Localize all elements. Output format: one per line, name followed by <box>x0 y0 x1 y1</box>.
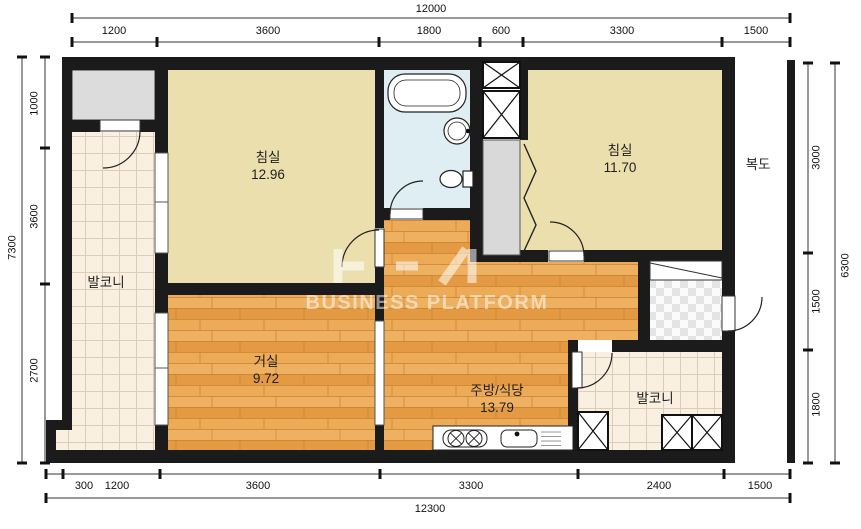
window <box>155 313 168 425</box>
room-area: 11.70 <box>560 159 680 176</box>
door-leaf <box>375 229 384 267</box>
shoe-cabinet <box>650 261 722 280</box>
window <box>155 153 168 253</box>
stove <box>443 430 487 447</box>
watermark-text: BUSINESS PLATFORM <box>227 292 627 315</box>
floor-plan: 12000 1200 3600 1800 600 3300 1500 300 1… <box>0 0 861 529</box>
corridor-wall <box>787 60 795 463</box>
closet <box>483 140 520 255</box>
room-name: 침실 <box>560 142 680 159</box>
balcony-left-notch-floor <box>56 430 72 450</box>
room-name: 주방/식당 <box>437 382 557 399</box>
dim-top-seg-5: 3300 <box>587 25 657 38</box>
door-leaf <box>100 120 140 131</box>
floor-plan-drawing <box>0 0 861 529</box>
dim-bottom-seg-3: 3600 <box>223 480 293 493</box>
dim-top-total: 12000 <box>396 3 466 16</box>
room-area: 13.79 <box>437 399 557 416</box>
kitchen-counter <box>433 426 573 450</box>
dim-left-seg-2: 3600 <box>29 187 42 247</box>
room-area: 12.96 <box>208 166 328 183</box>
dim-bottom-seg-2: 1200 <box>82 480 152 493</box>
window <box>375 321 384 425</box>
room-name: 침실 <box>208 149 328 166</box>
dim-bottom-seg-5: 2400 <box>624 480 694 493</box>
storage-room-floor <box>72 70 155 120</box>
room-label-bedroom1: 침실 12.96 <box>208 149 328 183</box>
dim-bottom-seg-4: 3300 <box>436 480 506 493</box>
dim-left-total: 7300 <box>7 218 20 278</box>
balcony-left-floor <box>72 132 155 450</box>
room-name: 거실 <box>206 353 326 370</box>
dim-left-seg-1: 1000 <box>29 74 42 134</box>
dim-left-seg-3: 2700 <box>29 341 42 401</box>
room-label-balcony-right: 발코니 <box>595 390 715 407</box>
sink <box>501 430 537 447</box>
dim-top-seg-2: 3600 <box>233 25 303 38</box>
room-label-corridor: 복도 <box>698 156 818 173</box>
dim-top-seg-1: 1200 <box>79 25 149 38</box>
dim-bottom-total: 12300 <box>395 503 465 516</box>
room-label-kitchen-dining: 주방/식당 13.79 <box>437 382 557 416</box>
dim-top-seg-3: 1800 <box>394 25 464 38</box>
dim-top-seg-6: 1500 <box>721 25 791 38</box>
room-label-balcony-left: 발코니 <box>46 274 166 291</box>
toilet <box>440 171 462 188</box>
room-label-living: 거실 9.72 <box>206 353 326 387</box>
dim-right-seg-2: 1500 <box>811 272 824 332</box>
room-area: 9.72 <box>206 370 326 387</box>
entrance-door-leaf <box>722 296 735 331</box>
room-label-bedroom2: 침실 11.70 <box>560 142 680 176</box>
dim-bottom-seg-6: 1500 <box>725 480 795 493</box>
dim-right-total: 6300 <box>840 236 853 296</box>
door-leaf <box>549 251 584 261</box>
dim-right-seg-3: 1800 <box>811 375 824 435</box>
door-leaf <box>390 209 423 219</box>
door-leaf <box>572 352 582 388</box>
dim-top-seg-4: 600 <box>466 25 536 38</box>
